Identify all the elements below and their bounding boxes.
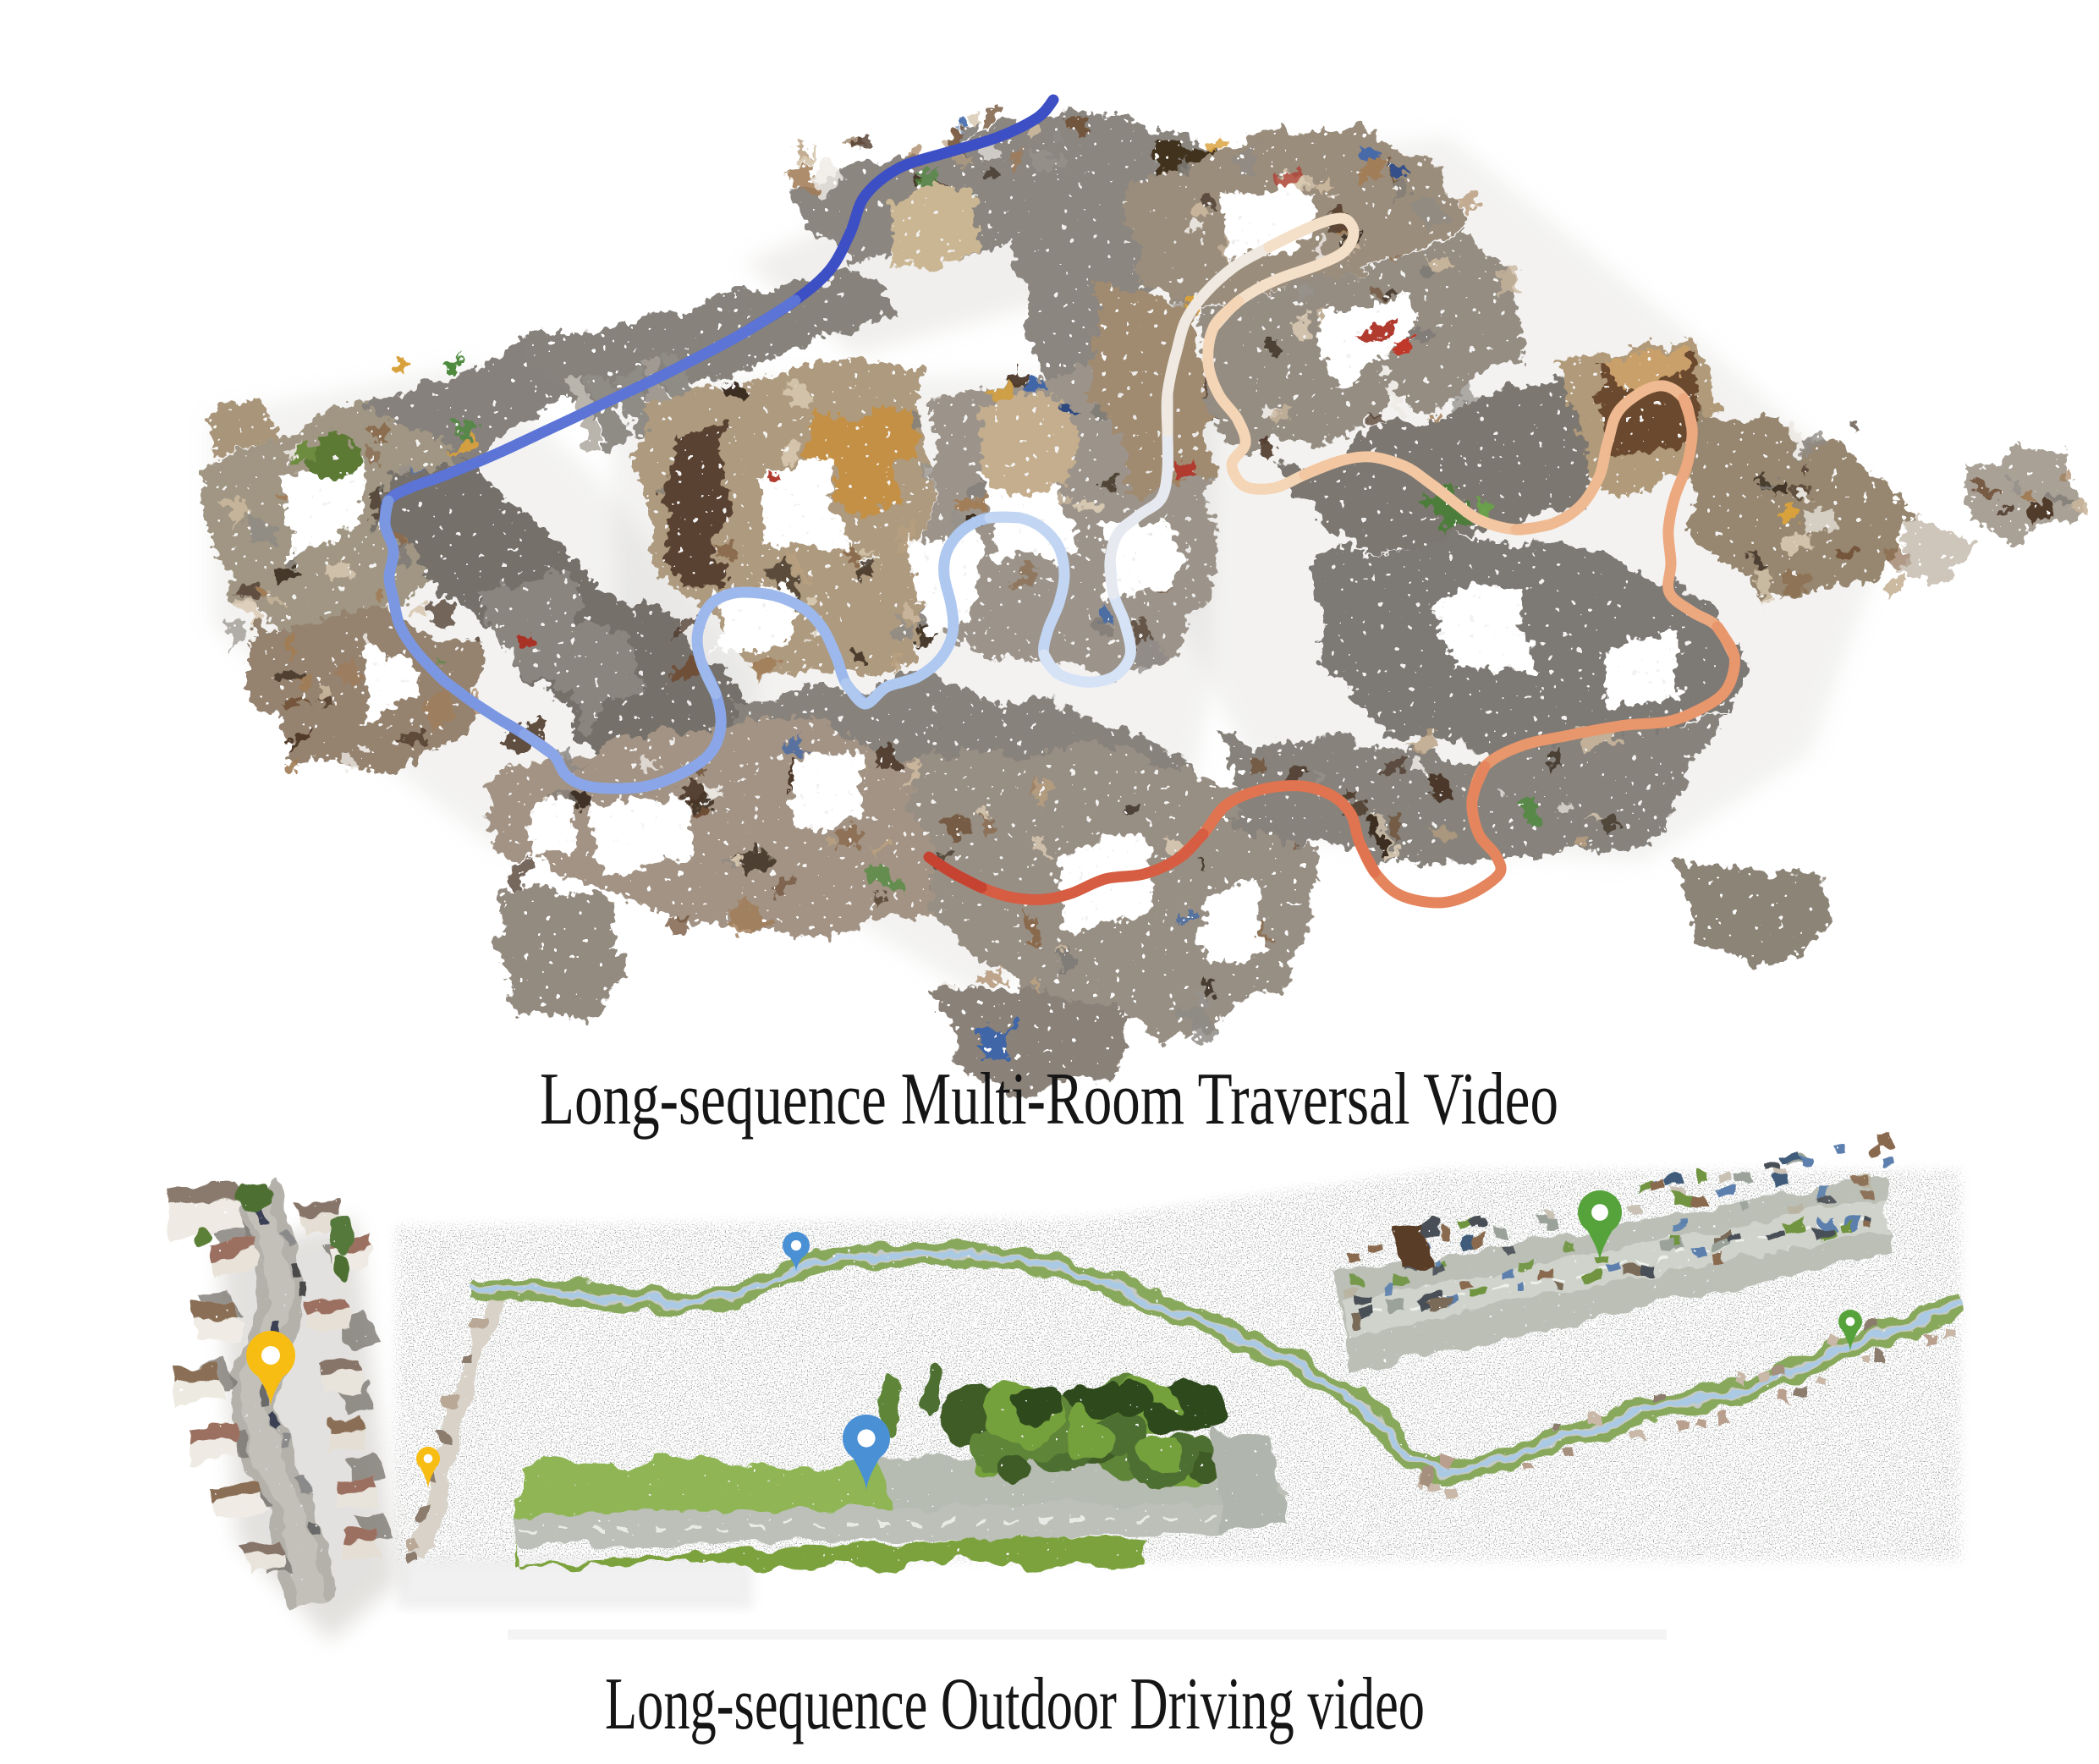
svg-text:Long-sequence Multi-Room Trave: Long-sequence Multi-Room Traversal Video (540, 1058, 1558, 1140)
svg-text:Long-sequence Outdoor Driving: Long-sequence Outdoor Driving video (605, 1663, 1425, 1745)
